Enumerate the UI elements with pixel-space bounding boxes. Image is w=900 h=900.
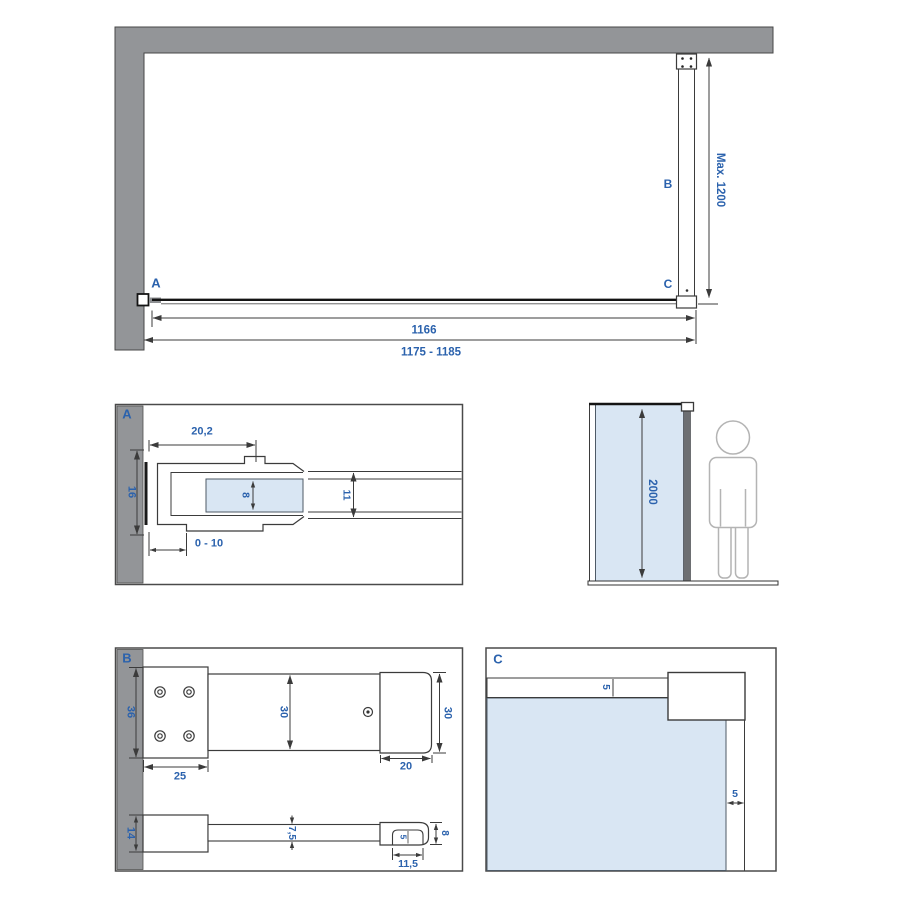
wall-bracket-plan [677,54,697,69]
wall-plan [115,27,773,350]
person-figure [710,421,757,578]
dim-11: 11 [341,489,352,500]
dim-8-end: 8 [439,830,449,836]
bracket-end-cap [380,673,432,754]
bar-bracket-c [668,673,745,721]
bracket-wall-plate [143,667,208,758]
dim-30-cap: 30 [442,707,453,719]
dim-0-10: 0 - 10 [195,539,223,550]
bar-bracket-elev [682,403,694,412]
dim-30-bar: 30 [278,706,289,718]
detail-a-label: A [122,408,131,421]
detail-b-label: B [122,652,131,665]
wall-profile-elev [590,404,596,582]
dim-5-notch: 5 [399,835,408,840]
plan-label-b: B [664,178,673,190]
dim-16: 16 [126,486,137,498]
dim-max-1200: Max. 1200 [713,153,725,207]
elevation-view [588,403,778,586]
bracket-wall-block-side [143,815,208,852]
glass-section-a [206,479,303,512]
dim-1166: 1166 [412,325,437,337]
glass-corner-c [487,698,726,871]
dim-8: 8 [240,492,251,498]
edge-profile-elev [684,406,692,582]
glass-panel-elev [596,404,684,582]
dim-25: 25 [174,772,186,783]
dim-5-top: 5 [600,684,610,690]
dim-14: 14 [125,827,136,839]
drawing-linework [0,0,900,900]
dim-36: 36 [125,706,136,718]
stabilizer-bar-c [487,678,668,698]
glass-bracket-plan [677,296,697,308]
plan-label-c: C [664,278,673,290]
detail-c-label: C [493,653,502,666]
dim-2000: 2000 [645,479,657,505]
dim-11-5: 11,5 [398,859,418,870]
dim-1175-1185: 1175 - 1185 [401,347,461,359]
person-head [717,421,750,454]
person-torso [710,458,757,528]
detail-c [486,648,776,871]
plan-label-a: A [151,277,160,290]
floor-line [588,581,778,585]
dim-5-side: 5 [732,789,738,800]
wall-profile-plan [138,294,149,306]
bracket-bar-top [208,674,380,751]
dim-20-cap: 20 [400,762,412,773]
detail-a [116,405,463,585]
dim-7-5: 7,5 [286,826,296,840]
dim-20-2: 20,2 [191,427,212,438]
wall-gasket [145,462,148,525]
plan-view [115,27,773,350]
technical-drawing: A B C Max. 1200 1166 1175 - 1185 A 20,2 … [0,0,900,900]
